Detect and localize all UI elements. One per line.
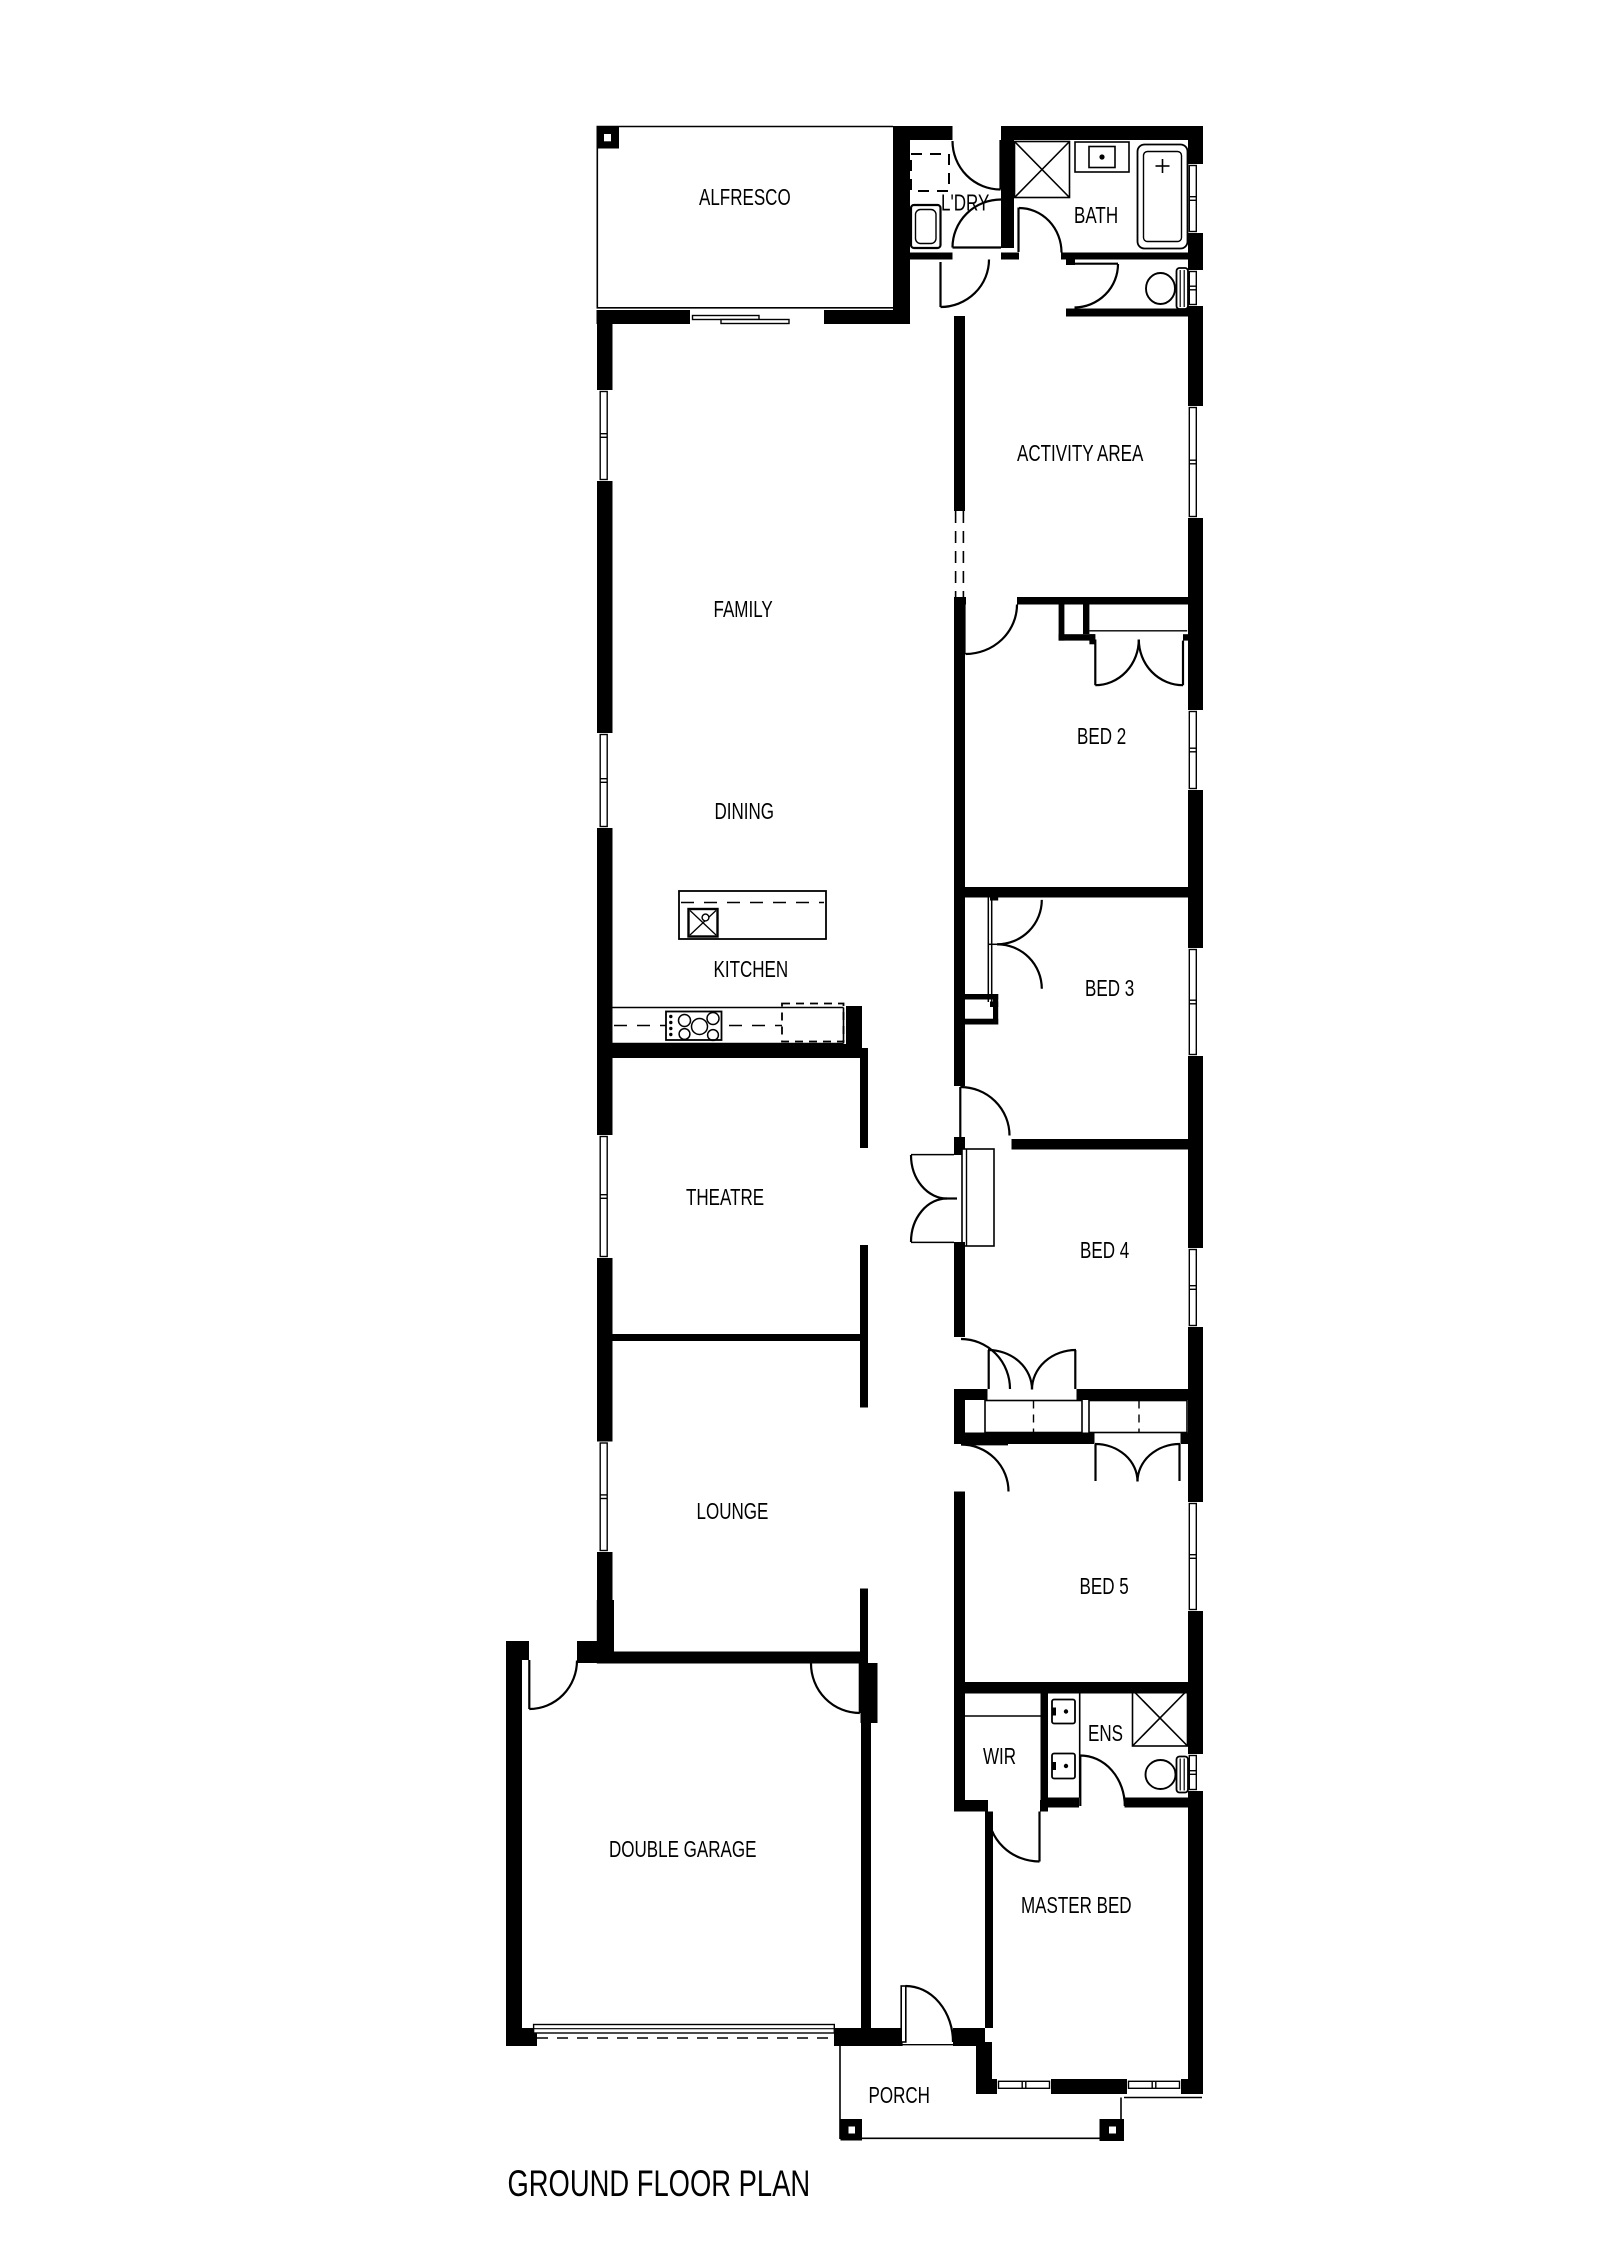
svg-text:BED 3: BED 3 [1085, 977, 1134, 1002]
svg-text:DINING: DINING [715, 800, 775, 825]
svg-text:BED 2: BED 2 [1077, 725, 1126, 750]
svg-text:ENS: ENS [1088, 1722, 1123, 1747]
svg-text:ALFRESCO: ALFRESCO [699, 186, 791, 211]
svg-text:DOUBLE GARAGE: DOUBLE GARAGE [609, 1838, 756, 1863]
svg-text:PORCH: PORCH [869, 2084, 930, 2109]
svg-text:KITCHEN: KITCHEN [714, 958, 789, 983]
svg-text:FAMILY: FAMILY [714, 598, 774, 623]
svg-text:BED 5: BED 5 [1080, 1575, 1129, 1600]
svg-text:WIR: WIR [983, 1745, 1016, 1770]
svg-text:GROUND FLOOR PLAN: GROUND FLOOR PLAN [508, 2163, 811, 2204]
svg-text:MASTER BED: MASTER BED [1021, 1894, 1132, 1919]
svg-text:BED 4: BED 4 [1080, 1239, 1129, 1264]
svg-text:LOUNGE: LOUNGE [697, 1500, 769, 1525]
svg-text:BATH: BATH [1074, 204, 1118, 229]
svg-text:THEATRE: THEATRE [686, 1186, 764, 1211]
svg-text:ACTIVITY AREA: ACTIVITY AREA [1017, 442, 1144, 467]
svg-text:L'DRY: L'DRY [941, 191, 990, 216]
